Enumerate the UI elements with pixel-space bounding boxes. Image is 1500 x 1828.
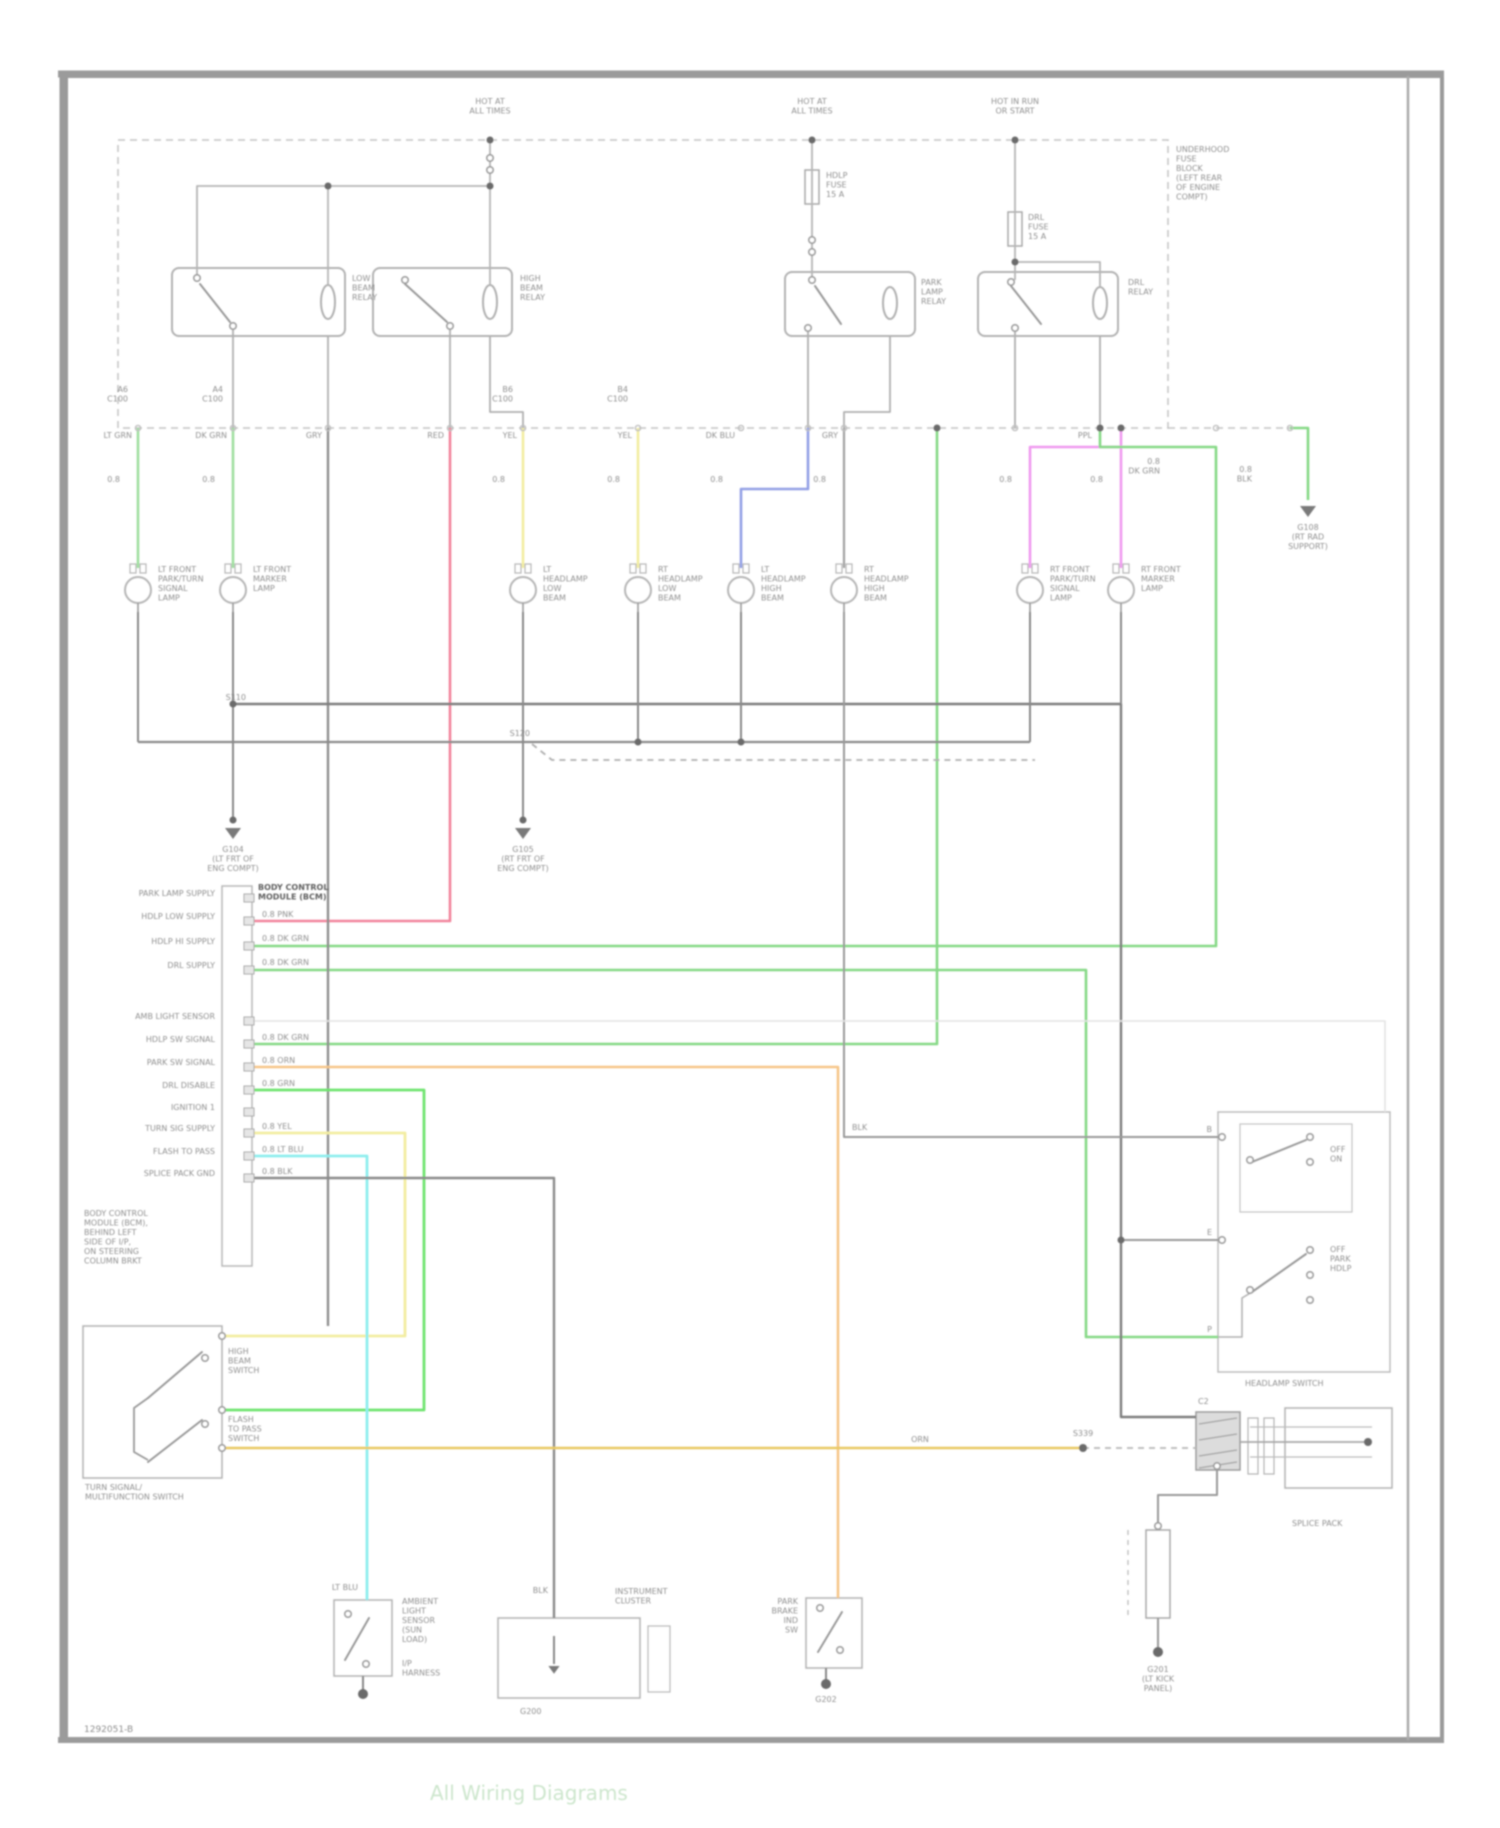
- r10-label: TURN SIG SUPPLY: [144, 1124, 215, 1133]
- g1: 0.8: [107, 475, 120, 484]
- wiring-diagram-page: HOT ATALL TIMESHOT ATALL TIMESHOT IN RUN…: [0, 0, 1500, 1828]
- junction-dot: [487, 137, 494, 144]
- lamp-rt-marker: [1108, 564, 1134, 612]
- watermark: All Wiring Diagrams: [430, 1781, 628, 1805]
- hls-pinE: E: [1207, 1228, 1212, 1237]
- dimmer-resistor-box: [1146, 1530, 1170, 1618]
- lampF-label: RTHEADLAMPHIGHBEAM: [864, 565, 909, 603]
- pin-circle: [202, 1355, 208, 1361]
- g4: 0.8: [607, 475, 620, 484]
- relay4-switch-blade: [1011, 286, 1041, 324]
- splice-pack-box: [1285, 1408, 1392, 1488]
- pin-circle: [817, 1605, 823, 1611]
- r3-wire: 0.8 DK GRN: [262, 934, 309, 943]
- lampB-label: LT FRONTMARKERLAMP: [253, 565, 291, 593]
- splice-conn-label: C2: [1198, 1397, 1209, 1406]
- feed2-label: HOT ATALL TIMES: [791, 97, 832, 116]
- lamp-lt-highbeam: [728, 564, 754, 612]
- mf-box-label: TURN SIGNAL/MULTIFUNCTION SWITCH: [84, 1483, 184, 1502]
- wcol-7: DK BLU: [706, 431, 735, 440]
- r2-wire: 0.8 PNK: [262, 910, 294, 919]
- lamp-rt-lowbeam: [625, 564, 651, 612]
- pin-circle: [487, 155, 493, 161]
- pin-circle: [219, 1407, 225, 1413]
- g108-label: G108(RT RADSUPPORT): [1288, 523, 1328, 551]
- lampD-label: RTHEADLAMPLOWBEAM: [658, 565, 703, 603]
- cluster-arrowhead: [548, 1666, 559, 1674]
- pin-circle: [1008, 279, 1014, 285]
- fuse3-label: HDLPFUSE15 A: [826, 171, 848, 199]
- pin-circle: [1307, 1297, 1313, 1303]
- hls-pinB: B: [1207, 1125, 1213, 1134]
- wcol-4: RED: [427, 431, 444, 440]
- pin-circle: [487, 167, 493, 173]
- cluster-box-b: [648, 1626, 670, 1692]
- page-border: [66, 76, 1442, 1740]
- s120-label: S120: [510, 729, 530, 738]
- junction-dot: [809, 137, 816, 144]
- r8-wire: 0.8 GRN: [262, 1079, 295, 1088]
- relay1-coil: [321, 285, 335, 319]
- wire-orange-r7: [252, 1067, 838, 1598]
- g8: 0.8: [1090, 475, 1103, 484]
- junction-dot: [1118, 425, 1125, 432]
- fuse4-label: DRLFUSE15 A: [1028, 213, 1049, 241]
- conn-a: A6C100: [107, 385, 128, 404]
- feed1-label: HOT ATALL TIMES: [469, 97, 510, 116]
- park-brake-switch-box: [806, 1598, 862, 1668]
- g6: 0.8: [813, 475, 826, 484]
- junction-dot: [821, 1679, 831, 1689]
- wcol-1: LT GRN: [103, 431, 132, 440]
- junction-dot: [520, 817, 527, 824]
- black-bus1: [233, 704, 1196, 1417]
- junction-dot: [325, 183, 332, 190]
- hls-green-pin-link: [1218, 1292, 1252, 1337]
- relay2-box: [373, 268, 512, 336]
- pin-circle: [1307, 1272, 1313, 1278]
- pin-circle: [1307, 1134, 1313, 1140]
- junction-dot: [1118, 1237, 1125, 1244]
- wcol-6: YEL: [617, 431, 633, 440]
- sensor-label2: I/PHARNESS: [402, 1659, 440, 1678]
- relay3-label: PARKLAMPRELAY: [921, 278, 946, 306]
- g2: 0.8: [202, 475, 215, 484]
- g3: 0.8: [492, 475, 505, 484]
- pin-circle: [1012, 325, 1018, 331]
- lampA-label: LT FRONTPARK/TURNSIGNALLAMP: [158, 565, 204, 603]
- r12-label: SPLICE PACK GND: [144, 1169, 215, 1178]
- wire-cyan-r11: [252, 1156, 367, 1600]
- wcol-9: PPL: [1078, 431, 1093, 440]
- rail2: [1015, 262, 1100, 286]
- ground-g104: [225, 828, 241, 839]
- wire-magenta-lampG: [1030, 428, 1121, 568]
- wcol-8: GRY: [822, 431, 838, 440]
- g7: 0.8: [999, 475, 1012, 484]
- mf-switch-common: [134, 1398, 148, 1460]
- relay2-coil-out: [490, 336, 523, 428]
- wcol-11: 0.8BLK: [1237, 465, 1253, 484]
- highbeam-sw-label: HIGHBEAMSWITCH: [228, 1347, 259, 1375]
- lampH-label: RT FRONTMARKERLAMP: [1141, 565, 1181, 593]
- r9-label: IGNITION 1: [171, 1103, 215, 1112]
- pin-circle: [1307, 1159, 1313, 1165]
- relay4-box: [978, 272, 1118, 336]
- sensor-label: AMBIENTLIGHTSENSOR(SUNLOAD): [402, 1597, 438, 1644]
- pin-circle: [805, 325, 811, 331]
- pin-circle: [837, 1647, 843, 1653]
- headlamp-switch-outer-box: [1218, 1112, 1390, 1372]
- fuse-block-label: UNDERHOODFUSEBLOCK(LEFT REAROF ENGINECOM…: [1176, 145, 1229, 202]
- bcm-pin: [244, 1017, 254, 1025]
- g5: 0.8: [710, 475, 723, 484]
- lampE-label: LTHEADLAMPHIGHBEAM: [761, 565, 806, 603]
- r4-wire: 0.8 DK GRN: [262, 958, 309, 967]
- r1-label: PARK LAMP SUPPLY: [139, 889, 215, 898]
- hls-switch-upper-blade: [1252, 1140, 1306, 1162]
- bcm-pin: [244, 966, 254, 974]
- pin-circle: [809, 249, 815, 255]
- relay3-coil: [883, 287, 897, 319]
- relay3-switch-blade: [815, 286, 841, 324]
- multifunction-switch-box: [83, 1326, 222, 1478]
- bcm-note: BODY CONTROLMODULE (BCM),BEHIND LEFTSIDE…: [84, 1209, 148, 1266]
- pin-circle: [230, 323, 236, 329]
- r6-label: HDLP SW SIGNAL: [146, 1035, 216, 1044]
- junction-dot: [1153, 1647, 1163, 1657]
- pin-circle: [402, 277, 408, 283]
- corner-ref: 1292051-B: [84, 1725, 133, 1735]
- lamp-lt-lowbeam: [510, 564, 536, 612]
- ground-g105: [515, 828, 531, 839]
- pin-circle: [363, 1661, 369, 1667]
- r7-wire: 0.8 ORN: [262, 1056, 295, 1065]
- cluster-box: [498, 1618, 640, 1698]
- pin-circle: [219, 1445, 225, 1451]
- r3-label: HDLP HI SUPPLY: [151, 937, 215, 946]
- rail1: [197, 186, 490, 278]
- wire-green-bcm-r3: [252, 428, 1216, 946]
- wire-green-bcm-r6: [252, 428, 937, 1044]
- junction-dot: [230, 817, 237, 824]
- hls-lower-label: OFFPARKHDLP: [1330, 1245, 1352, 1273]
- junction-dot: [1012, 259, 1019, 266]
- junction-dot: [635, 739, 642, 746]
- wire-blue-lampE: [741, 428, 808, 568]
- g104-label: G104(LT FRT OFENG COMPT): [207, 845, 258, 873]
- bcm-pin: [244, 1086, 254, 1094]
- pin-circle: [809, 237, 815, 243]
- bcm-pin: [244, 1063, 254, 1071]
- bcm-pin: [244, 942, 254, 950]
- junction-dot: [1097, 425, 1104, 432]
- lamp-lt-marker: [220, 564, 246, 612]
- junction-dot: [738, 739, 745, 746]
- pin-circle: [809, 277, 815, 283]
- relay4-label: DRLRELAY: [1128, 278, 1153, 297]
- bcm-pin: [244, 1040, 254, 1048]
- junction-dot: [358, 1689, 368, 1699]
- pin-circle: [1219, 1134, 1225, 1140]
- dimmer-drop: [1158, 1470, 1217, 1530]
- wiring-diagram-svg: HOT ATALL TIMESHOT ATALL TIMESHOT IN RUN…: [0, 0, 1500, 1828]
- sensor-switch-blade: [345, 1618, 369, 1660]
- wcol-10: 0.8DK GRN: [1128, 457, 1160, 476]
- r11-wire: 0.8 LT BLU: [262, 1145, 304, 1154]
- junction-dot: [1364, 1438, 1372, 1446]
- hls-pinP: P: [1207, 1325, 1212, 1334]
- bcm-header: BODY CONTROLMODULE (BCM): [258, 883, 328, 902]
- cluster-below-label: G200: [520, 1707, 541, 1716]
- wire-yellow-r10: [222, 1133, 405, 1336]
- lampC-label: LTHEADLAMPLOWBEAM: [543, 565, 588, 603]
- junction-dot: [487, 183, 494, 190]
- r6-wire: 0.8 DK GRN: [262, 1033, 309, 1042]
- junction-dot: [1012, 137, 1019, 144]
- conn-b: A4C100: [202, 385, 223, 404]
- pin-circle: [345, 1611, 351, 1617]
- pin-circle: [1247, 1157, 1253, 1163]
- flash-sw-label: FLASHTO PASSSWITCH: [227, 1415, 262, 1443]
- hls-switch-lower-blade: [1252, 1254, 1306, 1292]
- pin-circle: [1307, 1247, 1313, 1253]
- hls-box-label: HEADLAMP SWITCH: [1245, 1379, 1323, 1388]
- r12-wire: 0.8 BLK: [262, 1167, 293, 1176]
- r4-label: DRL SUPPLY: [167, 961, 215, 970]
- lamp-rt-highbeam: [831, 564, 857, 612]
- pin-circle: [202, 1421, 208, 1427]
- pin-circle: [219, 1333, 225, 1339]
- relay4-coil: [1093, 287, 1107, 319]
- wcol-2: DK GRN: [195, 431, 227, 440]
- lampF-wire-label: BLK: [852, 1123, 868, 1132]
- cyan-wire-label: LT BLU: [332, 1583, 358, 1592]
- flash-switch-blade: [148, 1420, 202, 1462]
- r7-label: PARK SW SIGNAL: [147, 1058, 216, 1067]
- cluster-wire-label: BLK: [533, 1586, 549, 1595]
- relay2-switch-blade: [405, 284, 447, 322]
- r8-label: DRL DISABLE: [162, 1081, 215, 1090]
- parkbrake-label: PARKBRAKEINDSW: [772, 1597, 799, 1635]
- ground-g108: [1300, 506, 1316, 517]
- wcol-3: GRY: [306, 431, 322, 440]
- conn-c: B6C100: [492, 385, 513, 404]
- feed3-label: HOT IN RUNOR START: [991, 97, 1039, 116]
- gold-wire-label: ORN: [911, 1435, 929, 1444]
- pin-circle: [194, 275, 200, 281]
- parkbrake-switch-blade: [818, 1612, 842, 1652]
- wcol-5: YEL: [502, 431, 518, 440]
- parkbrake-below: G202: [815, 1695, 836, 1704]
- cluster-label: INSTRUMENTCLUSTER: [615, 1587, 668, 1606]
- wire-green-ground-right: [1290, 428, 1308, 500]
- pin-circle: [1214, 1463, 1220, 1469]
- r2-label: HDLP LOW SUPPLY: [141, 912, 215, 921]
- r5-label: AMB LIGHT SENSOR: [135, 1012, 215, 1021]
- wire-green-bcm-r4: [252, 970, 1218, 1337]
- dashed-drl-wire: [532, 744, 1035, 760]
- hls-upper-label: OFFON: [1330, 1145, 1346, 1164]
- bcm-pin: [244, 1174, 254, 1182]
- pin-circle: [1155, 1523, 1161, 1529]
- pin-circle: [1247, 1287, 1253, 1293]
- headlamp-switch-inner-box: [1240, 1124, 1352, 1212]
- relay1-switch-blade: [200, 284, 230, 322]
- conn-d: B4C100: [607, 385, 628, 404]
- r10-wire: 0.8 YEL: [262, 1122, 292, 1131]
- junction-dot: [1079, 1444, 1087, 1452]
- bcm-pin: [244, 1108, 254, 1116]
- relay3-coil-out: [844, 336, 890, 428]
- g201-label: G201(LT KICKPANEL): [1142, 1665, 1175, 1693]
- s110-label: S110: [226, 693, 246, 702]
- lampG-label: RT FRONTPARK/TURNSIGNALLAMP: [1050, 565, 1096, 603]
- g105-label: G105(RT FRT OFENG COMPT): [497, 845, 548, 873]
- relay2-label: HIGHBEAMRELAY: [520, 274, 545, 302]
- relay2-coil: [483, 285, 497, 319]
- r11-label: FLASH TO PASS: [153, 1147, 215, 1156]
- bcm-pin: [244, 917, 254, 925]
- pin-circle: [1219, 1237, 1225, 1243]
- lamp-rt-parkturn: [1017, 564, 1043, 612]
- wire-pink-bcm: [252, 428, 450, 921]
- bcm-pin: [244, 1129, 254, 1137]
- gold-splice-label: S339: [1073, 1429, 1093, 1438]
- highbeam-switch-blade: [148, 1352, 202, 1398]
- pin-circle: [447, 323, 453, 329]
- splice-pack-label: SPLICE PACK: [1292, 1519, 1343, 1528]
- bcm-pin: [244, 894, 254, 902]
- wire-gray-r12: [252, 1178, 554, 1618]
- junction-dot: [934, 425, 941, 432]
- bcm-pin: [244, 1152, 254, 1160]
- lamp-lt-parkturn: [125, 564, 151, 612]
